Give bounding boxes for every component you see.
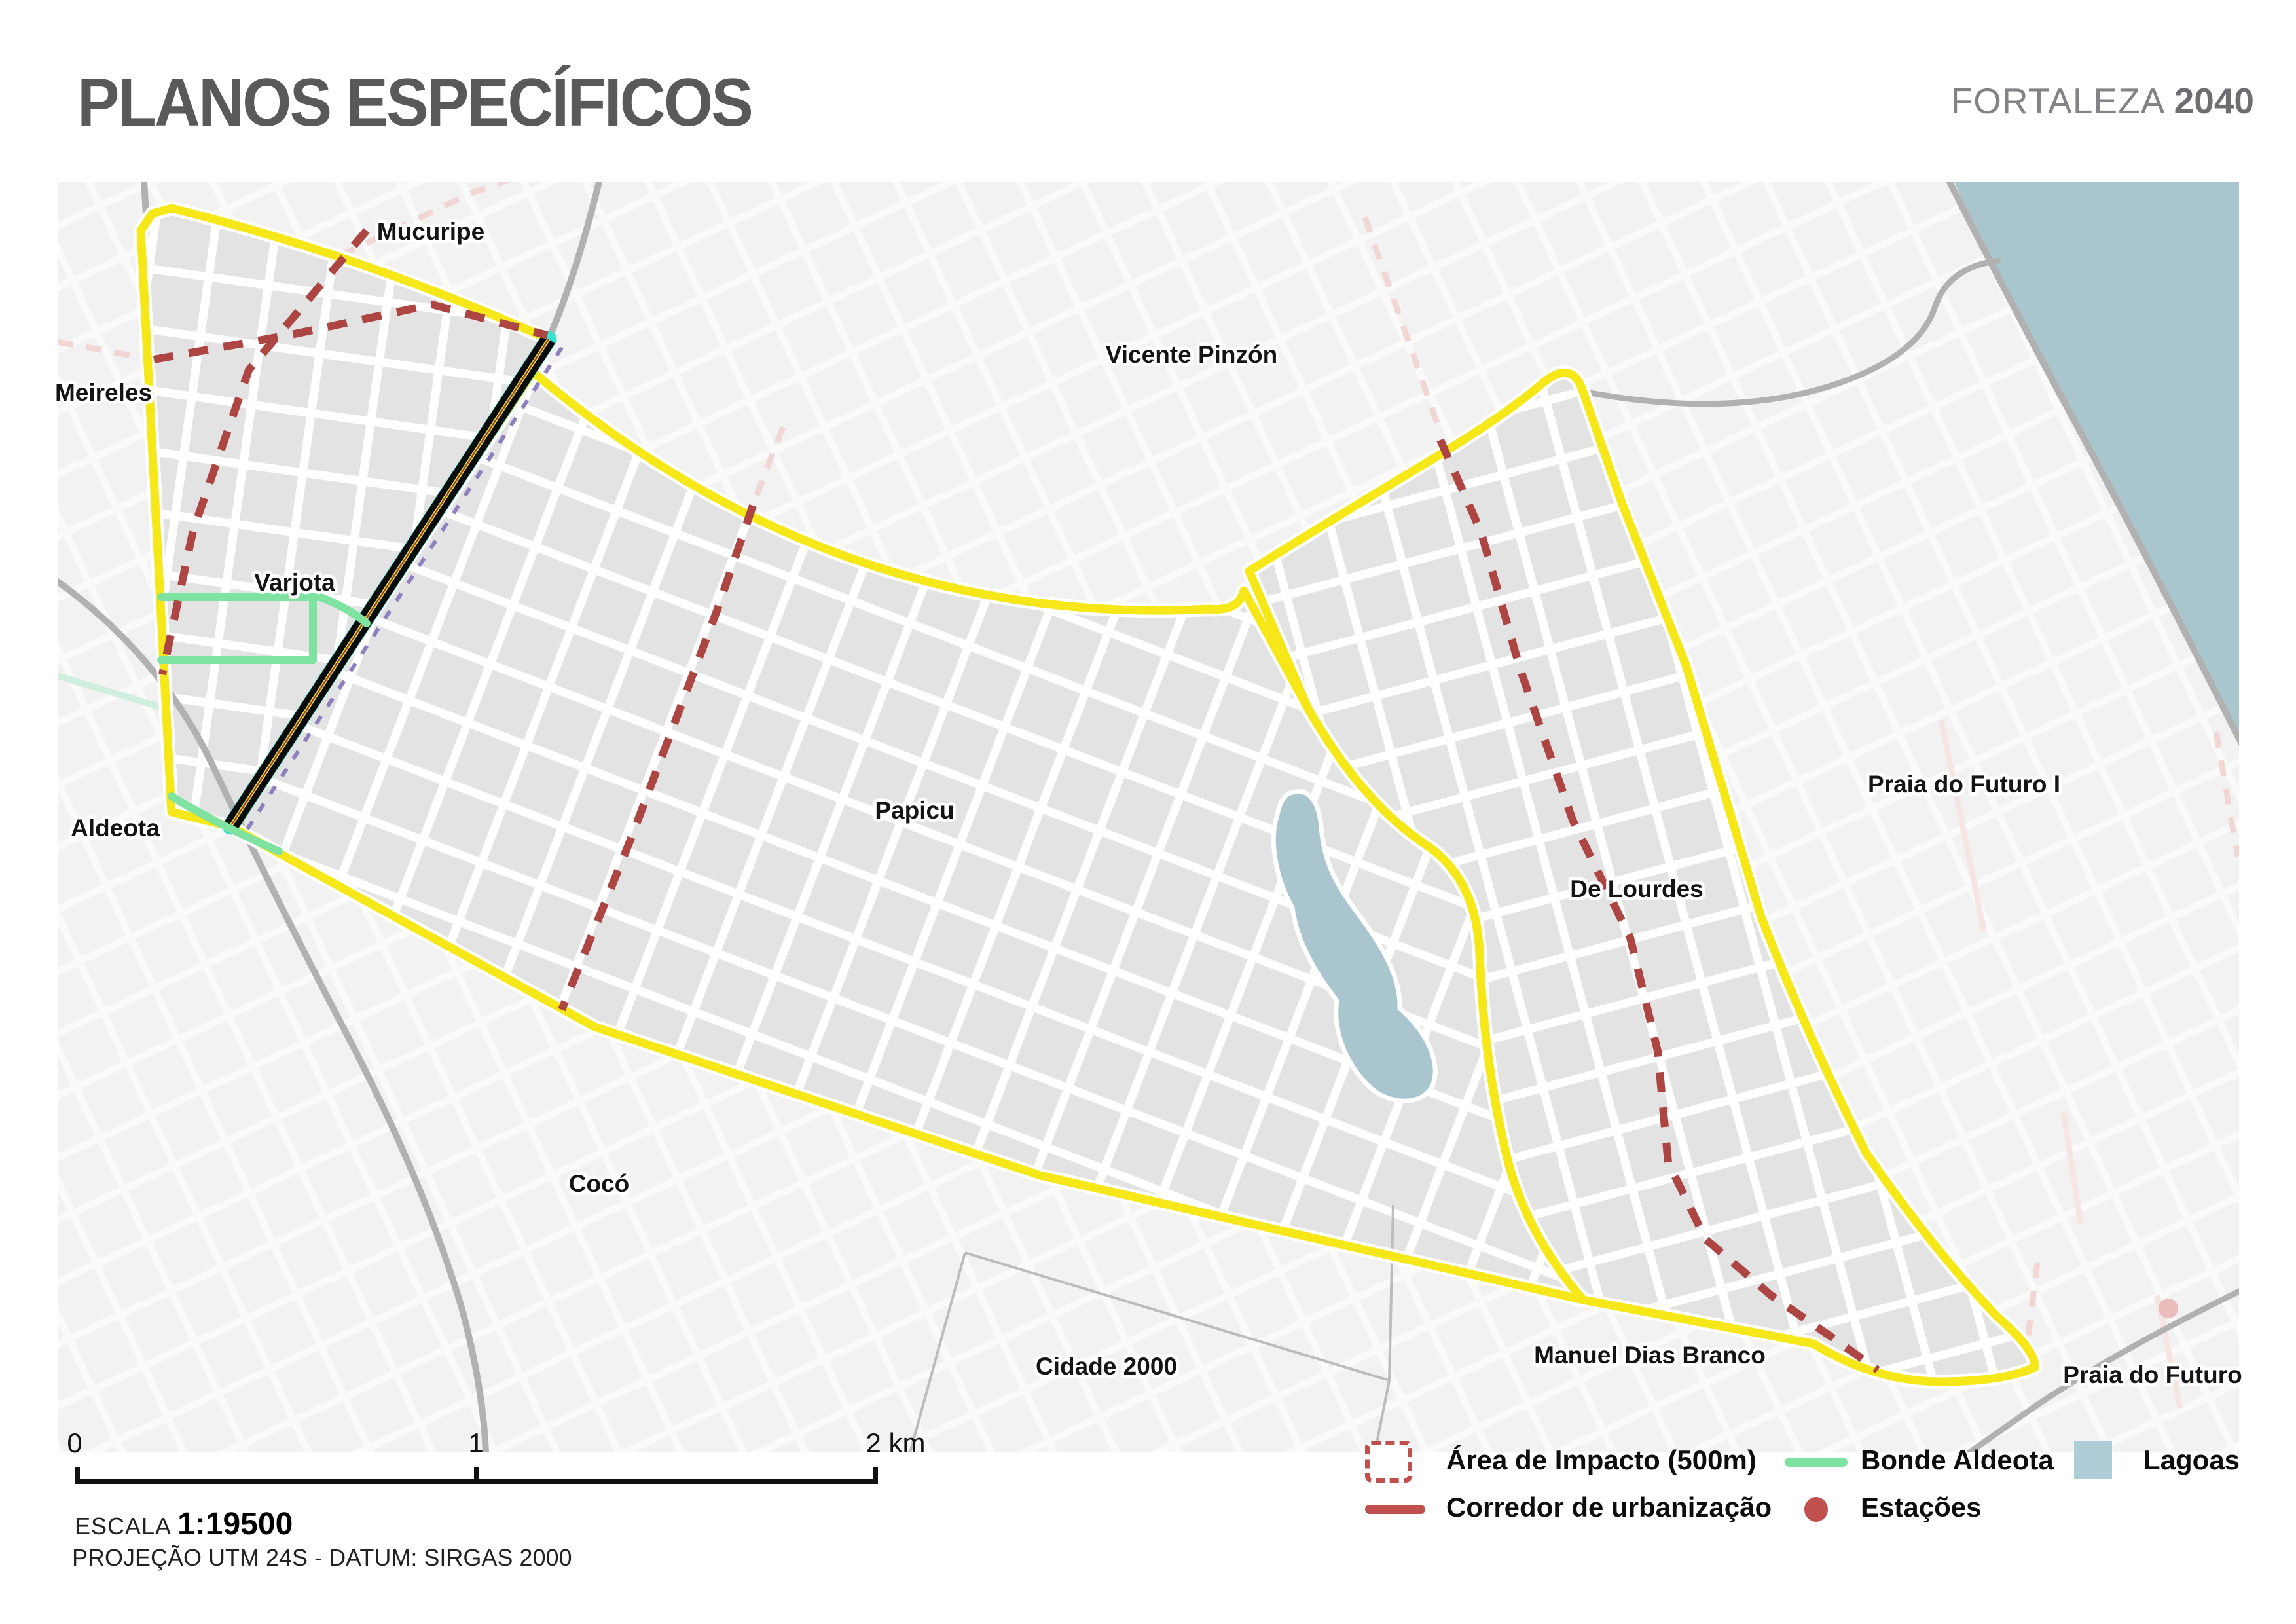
faded-station-dot xyxy=(2159,1299,2178,1318)
scale-tick-1: 1 xyxy=(468,1428,483,1459)
scale-tick-0: 0 xyxy=(67,1428,82,1459)
map-label-coco: Cocó xyxy=(569,1170,630,1198)
area-impacto-swatch-icon xyxy=(1365,1441,1412,1483)
lagoas-swatch-icon xyxy=(2074,1441,2112,1479)
map-label-cidade-2000: Cidade 2000 xyxy=(1036,1353,1177,1380)
escala-line: ESCALA 1:19500 xyxy=(75,1506,293,1542)
city-map xyxy=(0,0,2296,1624)
map-label-praia-futuro-1: Praia do Futuro I xyxy=(1868,771,2060,798)
map-label-praia-do-futuro: Praia do Futuro xyxy=(2063,1361,2242,1389)
map-label-vicente-pinzon: Vicente Pinzón xyxy=(1106,341,1278,369)
corredor-swatch-icon xyxy=(1365,1505,1425,1514)
legend-bonde-aldeota: Bonde Aldeota xyxy=(1861,1445,2054,1476)
legend-area-impacto: Área de Impacto (500m) xyxy=(1446,1445,1757,1476)
map-label-de-lourdes: De Lourdes xyxy=(1570,876,1704,903)
map-label-manuel-dias-branco: Manuel Dias Branco xyxy=(1534,1342,1766,1369)
legend-corredor: Corredor de urbanização xyxy=(1446,1492,1772,1523)
scale-bar-tickmark xyxy=(873,1467,878,1484)
map-label-meireles: Meireles xyxy=(55,379,152,407)
projection-note: PROJEÇÃO UTM 24S - DATUM: SIRGAS 2000 xyxy=(72,1544,572,1572)
page-title: PLANOS ESPECÍFICOS xyxy=(77,64,752,142)
bonde-aldeota-swatch-icon xyxy=(1785,1458,1848,1467)
scale-bar-tickmark xyxy=(75,1467,80,1484)
brand-name: FORTALEZA xyxy=(1951,81,2164,121)
scale-bar-tickmark xyxy=(474,1467,479,1484)
map-label-mucuripe: Mucuripe xyxy=(377,218,484,246)
fortaleza-2040-logo: FORTALEZA 2040 xyxy=(1951,80,2254,122)
map-label-papicu: Papicu xyxy=(875,797,954,824)
escala-label: ESCALA xyxy=(75,1513,170,1540)
map-label-aldeota: Aldeota xyxy=(71,815,160,842)
legend-estacoes: Estações xyxy=(1861,1492,1981,1523)
brand-year: 2040 xyxy=(2174,81,2254,121)
scale-tick-2: 2 km xyxy=(866,1428,925,1459)
legend-lagoas: Lagoas xyxy=(2143,1445,2240,1476)
map-label-varjota: Varjota xyxy=(254,569,335,597)
escala-value: 1:19500 xyxy=(177,1507,293,1541)
page: PLANOS ESPECÍFICOS FORTALEZA 2040 Mucuri… xyxy=(0,0,2296,1624)
estacoes-dot-icon xyxy=(1804,1497,1828,1522)
